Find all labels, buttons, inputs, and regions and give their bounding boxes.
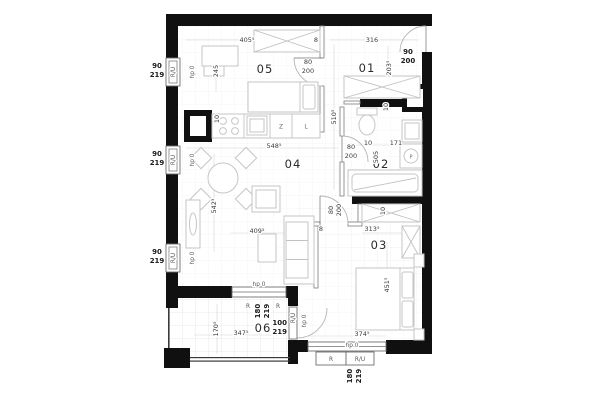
dim-505: 505	[372, 151, 380, 163]
nightstand-icon	[414, 254, 424, 267]
dim-170: 170⁵	[212, 321, 220, 336]
door03-width: 80	[327, 206, 335, 214]
dim-203: 203⁵	[385, 60, 393, 75]
window1-height: 219	[150, 71, 165, 79]
washer-label: P	[409, 154, 412, 160]
wardrobe-hall-icon	[344, 76, 420, 98]
window2-hp-label: hp 0	[190, 153, 196, 166]
balcony-door-hp-label: hp 0	[302, 314, 308, 327]
dim-405: 405⁵	[239, 36, 254, 44]
sofa-icon	[284, 216, 314, 284]
dim-8-top: 8	[314, 36, 318, 44]
window2-height: 219	[150, 159, 165, 167]
window03-height: 219	[355, 369, 363, 384]
dim-313: 313⁵	[364, 225, 379, 233]
dim-8-door03: 8	[319, 225, 323, 233]
window03-ru-label: R/U	[355, 357, 365, 363]
wardrobe-bedroom-top-icon	[362, 204, 420, 222]
window2-ru-label: R/U	[171, 155, 177, 165]
dim-451: 451⁵	[383, 277, 391, 292]
kitchen-sink-icon	[247, 116, 267, 135]
window-livingroom-balcony	[232, 287, 286, 297]
room-label-05: 05	[257, 62, 274, 76]
dim-374: 374⁵	[354, 330, 369, 338]
wardrobe-icon	[254, 30, 320, 52]
dim-510: 510⁵	[330, 109, 338, 124]
dim-171: 171	[390, 139, 402, 147]
bed-single-icon	[248, 82, 318, 112]
dim-316: 316	[366, 36, 378, 44]
window1-hp-label: hp 0	[190, 65, 196, 78]
door05-height: 200	[302, 67, 314, 75]
dim-245: 245	[212, 65, 220, 77]
entry-door-width: 90	[403, 48, 413, 56]
door03-height: 200	[335, 204, 343, 216]
window3-height: 219	[150, 257, 165, 265]
bath-sink-icon	[402, 120, 422, 142]
dim-10-kitchen: 10	[213, 115, 221, 123]
armchair-icon	[252, 186, 280, 212]
dim-548: 548⁵	[266, 142, 281, 150]
window04-r-right: R	[276, 304, 280, 310]
window3-ru-label: R/U	[171, 253, 177, 263]
dim-542: 542³	[210, 198, 218, 213]
window03-r-label: R	[329, 357, 333, 363]
bathtub-icon	[348, 170, 422, 196]
window04-width: 180	[254, 304, 262, 319]
bathdoor-width: 80	[347, 143, 355, 151]
window03-width: 180	[346, 369, 354, 384]
room-label-04: 04	[285, 157, 302, 171]
dim-10-bath: 10	[364, 139, 372, 147]
dishwasher-label: Z	[279, 124, 283, 131]
bathdoor-height: 200	[345, 152, 357, 160]
window1-ru-label: R/U	[171, 67, 177, 77]
toilet-icon	[357, 108, 377, 135]
window3-width: 90	[152, 248, 162, 256]
window1-width: 90	[152, 62, 162, 70]
shaft-kitchen	[184, 110, 212, 142]
dim-10-wardrobe: 10	[379, 207, 387, 215]
wardrobe-bedroom-right-icon	[402, 226, 420, 258]
room-label-01: 01	[359, 61, 376, 75]
balcony-door-ru-label: R/U	[291, 313, 297, 323]
tv-cabinet-icon	[186, 200, 200, 248]
window2-width: 90	[152, 150, 162, 158]
door05-width: 80	[304, 58, 312, 66]
room-label-06: 06	[255, 321, 272, 335]
dim-347: 347⁵	[233, 329, 248, 337]
balcony-pillar	[164, 348, 190, 368]
window03-hp-label: hp 0	[346, 343, 359, 349]
room-label-03: 03	[371, 238, 388, 252]
nightstand-icon	[414, 329, 424, 340]
window04-height: 219	[263, 304, 271, 319]
balcony-door-width: 100	[272, 319, 287, 327]
entry-door-height: 200	[401, 57, 416, 65]
dim-10-toilet: 10	[382, 103, 390, 111]
window3-hp-label: hp 0	[190, 251, 196, 264]
window04-r-left: R	[246, 304, 250, 310]
floor-plan-drawing: 05 01 02 04 03 06 405⁵ 8 316 90 200 90 2…	[0, 0, 600, 400]
dim-409: 409⁵	[249, 227, 264, 235]
balcony-door-height: 219	[272, 328, 287, 336]
floor-plan: 05 01 02 04 03 06 405⁵ 8 316 90 200 90 2…	[0, 0, 600, 400]
coffee-table-icon	[258, 234, 276, 262]
window04-hp-label: hp 0	[253, 282, 266, 288]
